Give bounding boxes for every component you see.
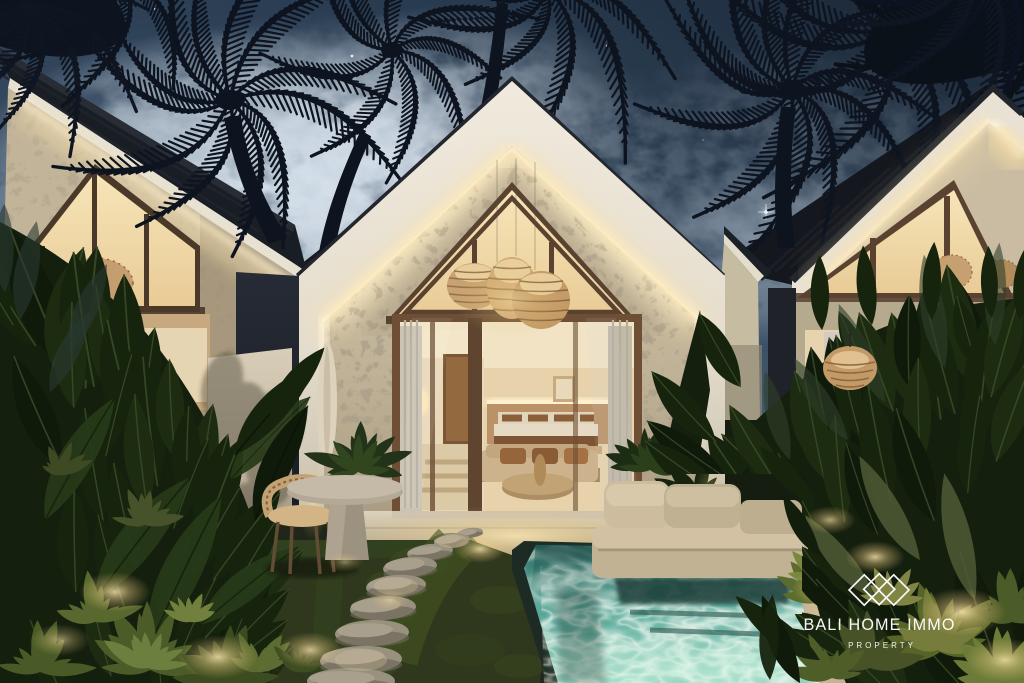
svg-text:PROPERTY: PROPERTY bbox=[848, 641, 916, 650]
svg-text:BALI HOME IMMO: BALI HOME IMMO bbox=[803, 616, 955, 634]
